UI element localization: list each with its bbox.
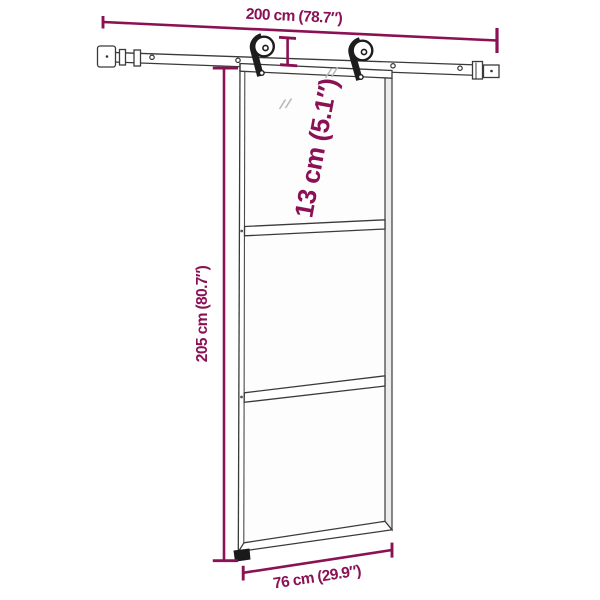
door-left-edge bbox=[238, 64, 240, 552]
right-wheel-hub bbox=[361, 49, 366, 54]
door-height-label: 205 cm (80.7″) bbox=[194, 265, 211, 362]
door-right-edge bbox=[385, 74, 392, 530]
rail-right-collar bbox=[473, 62, 483, 80]
dimension-diagram: 200 cm (78.7″) 13 cm (5.1″) 205 cm (80.7… bbox=[0, 0, 600, 600]
stile-screw-icon bbox=[240, 396, 243, 399]
rail-width-label: 200 cm (78.7″) bbox=[245, 6, 343, 28]
rail-screw-icon bbox=[458, 66, 462, 70]
dimension-door-height: 205 cm (80.7″) bbox=[194, 68, 238, 561]
dimension-rail-width: 200 cm (78.7″) bbox=[103, 6, 497, 53]
dimension-door-width: 76 cm (29.9″) bbox=[243, 543, 392, 593]
rail-screw-icon bbox=[391, 64, 395, 68]
left-strap-bolt bbox=[260, 71, 265, 76]
left-wheel-hub bbox=[263, 45, 268, 50]
hardware-height-bottom-cap bbox=[280, 65, 297, 66]
rail-left-collar-1 bbox=[120, 50, 126, 66]
rail-left-collar-2 bbox=[134, 50, 141, 66]
diagram-svg: 200 cm (78.7″) 13 cm (5.1″) 205 cm (80.7… bbox=[0, 0, 600, 600]
rail-left-end-screw bbox=[106, 55, 109, 58]
right-strap-bolt bbox=[359, 75, 364, 80]
hardware-height-top-cap bbox=[279, 37, 296, 38]
stile-screw-icon bbox=[240, 230, 243, 233]
rail-screw-icon bbox=[236, 58, 240, 62]
rail-screw-icon bbox=[150, 55, 154, 59]
rail-right-end-screw bbox=[490, 70, 493, 73]
